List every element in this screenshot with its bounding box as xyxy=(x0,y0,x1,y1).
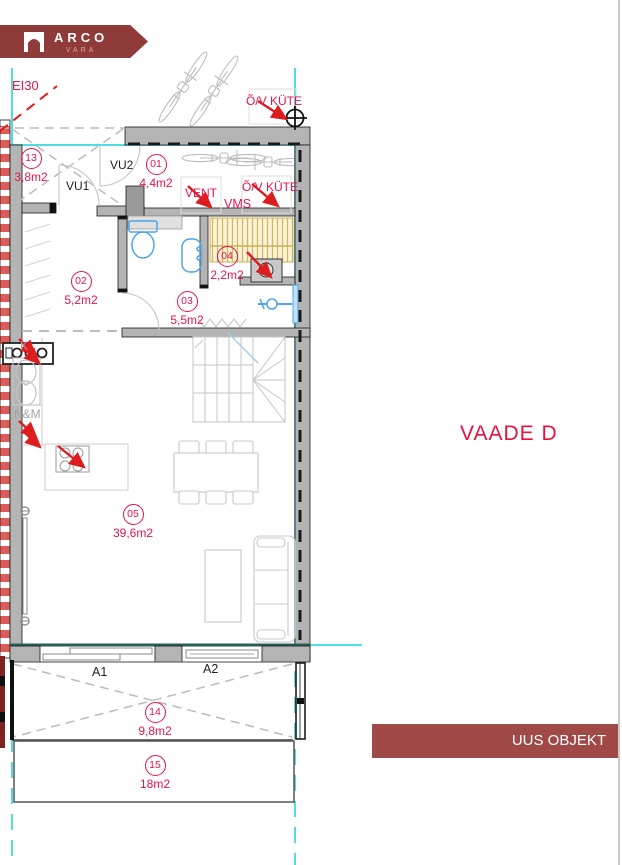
room-number: 02 xyxy=(71,271,92,292)
view-title: VAADE D xyxy=(460,423,558,444)
appliance-label-nm: N&M xyxy=(14,408,41,420)
room-label-05: 05 39,6m2 xyxy=(101,504,165,540)
ov-kyte-label-inner: Õ/V KÜTE xyxy=(242,181,298,193)
opening-label-a2: A2 xyxy=(203,663,218,676)
room-label-13: 13 3,8m2 xyxy=(0,148,63,184)
room-label-14: 14 9,8m2 xyxy=(123,702,187,738)
ov-kyte-label-top: Õ/V KÜTE xyxy=(246,95,302,107)
room-number: 14 xyxy=(145,702,166,723)
room-number: 15 xyxy=(145,755,166,776)
south-wall-windows xyxy=(10,645,310,662)
appliance-label-k: K xyxy=(20,340,28,352)
radiator xyxy=(258,285,298,323)
room-area: 3,8m2 xyxy=(14,170,47,184)
sofa xyxy=(254,536,295,642)
room-number: 05 xyxy=(123,504,144,525)
arco-vara-logo: ARCO VARA xyxy=(0,25,148,58)
room-area: 39,6m2 xyxy=(113,526,153,540)
ei30-fire-wall xyxy=(0,120,10,658)
kitchen-island xyxy=(45,444,128,490)
room-label-01: 01 4,4m2 xyxy=(124,154,188,190)
opening-label-a1: A1 xyxy=(92,666,107,679)
ei30-label: EI30 xyxy=(12,79,39,92)
room-area: 9,8m2 xyxy=(138,724,171,738)
dining-set xyxy=(174,441,258,504)
logo-text-vara: VARA xyxy=(66,47,97,54)
room-label-02: 02 5,2m2 xyxy=(49,271,113,307)
arch-house-icon xyxy=(24,32,44,52)
floor-plan-page: EI30 VU2 VU1 VENT VMS Õ/V KÜTE Õ/V KÜTE … xyxy=(0,0,622,865)
room-area: 2,2m2 xyxy=(210,268,243,282)
vent-label: VENT xyxy=(185,187,217,199)
status-banner: UUS OBJEKT xyxy=(372,724,618,758)
logo-text-arco: ARCO xyxy=(54,30,108,45)
room-number: 04 xyxy=(217,246,238,267)
exterior-walls xyxy=(0,120,310,662)
staircase xyxy=(193,337,285,422)
room-number: 03 xyxy=(177,291,198,312)
bicycle-icons xyxy=(153,48,310,170)
room-label-03: 03 5,5m2 xyxy=(155,291,219,327)
door-label-vu1: VU1 xyxy=(66,180,89,192)
room-area: 4,4m2 xyxy=(139,176,172,190)
room-number: 13 xyxy=(21,148,42,169)
room-label-15: 15 18m2 xyxy=(123,755,187,791)
vms-label: VMS xyxy=(224,198,251,211)
room-number: 01 xyxy=(146,154,167,175)
room-area: 5,5m2 xyxy=(170,313,203,327)
room-area: 5,2m2 xyxy=(64,293,97,307)
room-area: 18m2 xyxy=(140,777,170,791)
coffee-table xyxy=(205,550,241,622)
room-label-04: 04 2,2m2 xyxy=(195,246,259,282)
page-border-line xyxy=(618,0,620,865)
closet-hatch xyxy=(25,224,50,317)
window-a1 xyxy=(70,648,152,654)
